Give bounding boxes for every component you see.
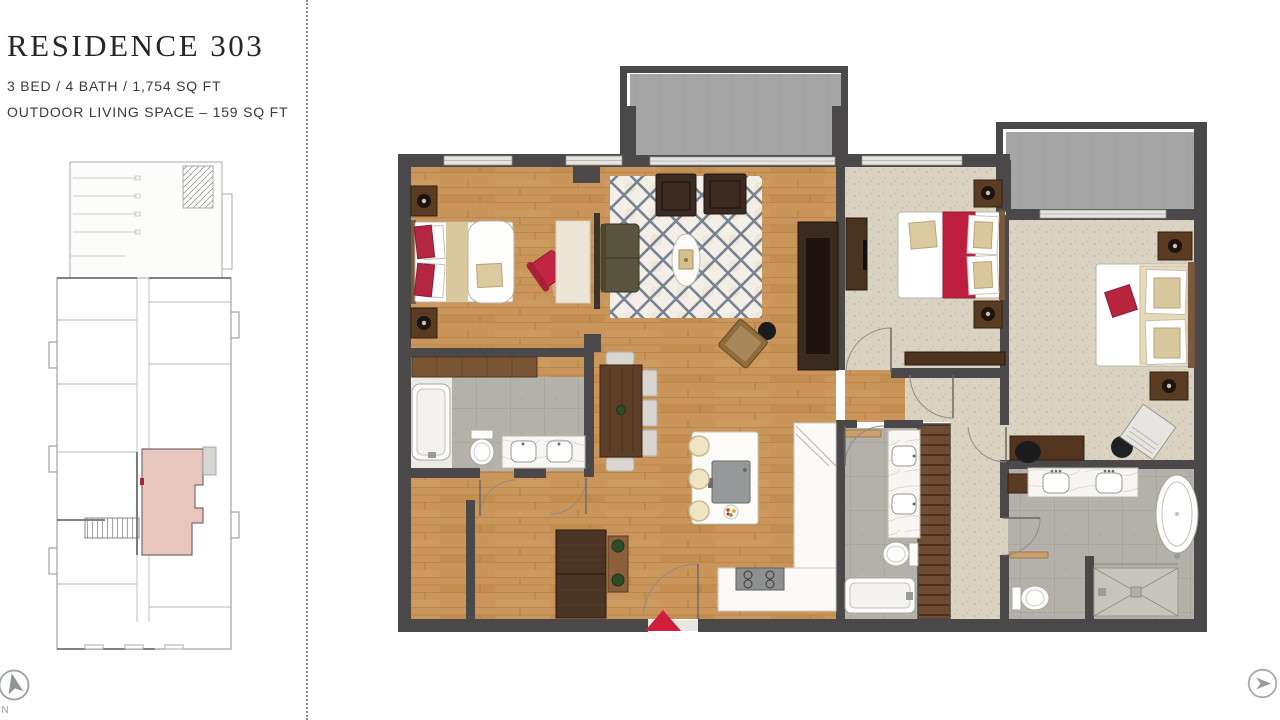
bed-headboard: [999, 210, 1005, 300]
sink: [892, 494, 916, 514]
fruit-bowl: [724, 505, 738, 519]
toilet: [1012, 587, 1021, 610]
plant: [612, 574, 624, 586]
key-plan-garage: [70, 162, 232, 278]
bar-stool: [689, 436, 709, 456]
sink: [1096, 473, 1122, 493]
red-pillow: [414, 225, 434, 259]
desk-chair: [1015, 441, 1041, 463]
compass-north-icon: N: [0, 666, 42, 720]
next-button[interactable]: [1246, 667, 1280, 701]
specs-beds-baths-area: 3 BED / 4 BATH / 1,754 SQ FT: [7, 78, 297, 94]
dining-chair: [606, 458, 634, 471]
plant: [612, 540, 624, 552]
closet: [412, 357, 537, 377]
compass: N: [0, 666, 42, 720]
dining-area: [600, 352, 657, 471]
range: [736, 568, 784, 590]
key-plan-svg: [45, 152, 240, 654]
toilet: [909, 543, 918, 566]
dining-chair: [642, 400, 657, 426]
key-plan-unit-door-marker: [140, 478, 144, 485]
building-key-plan: [45, 152, 240, 654]
dining-chair: [642, 430, 657, 456]
next-arrow-icon: [1246, 667, 1280, 701]
vanity-cabinet: [1008, 474, 1028, 493]
floor-plan-svg: [393, 58, 1211, 636]
vertical-dotted-divider: [306, 0, 308, 720]
key-plan-highlighted-unit: [142, 449, 203, 555]
shelf: [845, 430, 881, 437]
island-sink: [712, 461, 750, 503]
sink: [1043, 473, 1069, 493]
red-pillow: [414, 263, 434, 297]
balcony-right-floor: [1006, 132, 1196, 211]
key-plan-hatch-block: [203, 447, 216, 475]
residence-title: RESIDENCE 303: [7, 28, 297, 64]
bar-stool: [689, 469, 709, 489]
info-panel: RESIDENCE 303 3 BED / 4 BATH / 1,754 SQ …: [7, 28, 297, 130]
sink: [892, 446, 916, 466]
table-plant: [617, 406, 626, 415]
balcony-top-floor: [630, 74, 844, 158]
dining-chair: [606, 352, 634, 365]
floor-plan: [393, 58, 1211, 636]
bar-stool: [689, 501, 709, 521]
sofa-console: [594, 213, 600, 309]
low-dresser: [905, 352, 1005, 365]
dining-chair: [642, 370, 657, 396]
console-table: [556, 221, 590, 303]
bed-headboard: [1188, 262, 1195, 368]
compass-label: N: [1, 705, 8, 716]
toilet: [471, 430, 493, 439]
walk-in-closet: [918, 424, 950, 619]
specs-outdoor-space: OUTDOOR LIVING SPACE – 159 SQ FT: [7, 104, 297, 120]
